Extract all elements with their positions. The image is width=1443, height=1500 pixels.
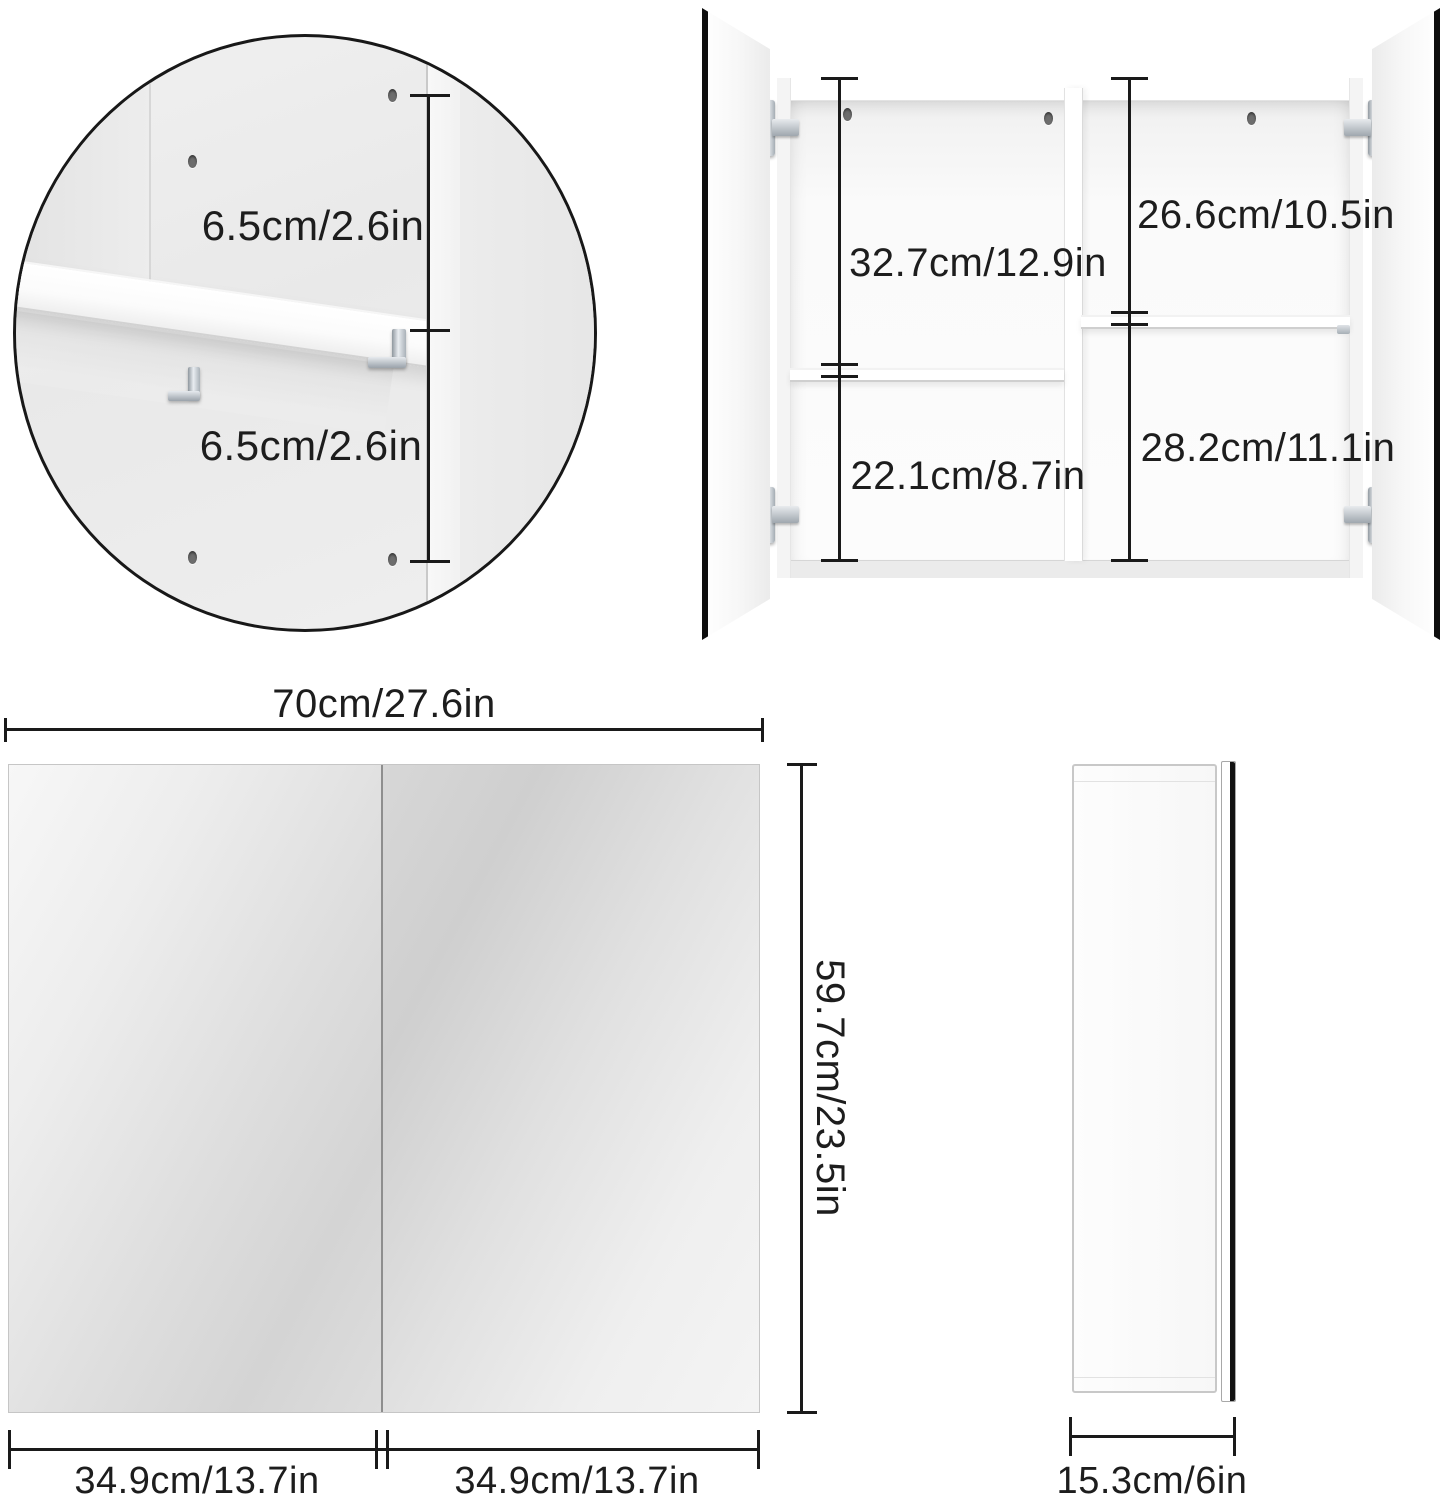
peg-hole (188, 551, 197, 564)
shelf-spacing-detail-circle: 6.5cm/2.6in 6.5cm/2.6in (13, 34, 597, 632)
tick (1111, 311, 1148, 314)
tick (1069, 1417, 1072, 1456)
tick (821, 375, 858, 378)
cabinet-side-wall (426, 37, 463, 629)
dim-label-left-bottom: 22.1cm/8.7in (850, 456, 1085, 496)
product-dimension-diagram: 6.5cm/2.6in 6.5cm/2.6in (0, 0, 1443, 1500)
dim-label-height: 59.7cm/23.5in (810, 959, 850, 1217)
peg-hole (188, 155, 197, 168)
dim-label-left-top: 32.7cm/12.9in (849, 243, 1107, 283)
tick (821, 559, 858, 562)
mirror-front (8, 764, 760, 1413)
tick (8, 1430, 11, 1469)
dim-label-upper-gap: 6.5cm/2.6in (202, 205, 425, 247)
cabinet-side-body (1072, 764, 1217, 1393)
mirror-door-right (383, 765, 759, 1412)
dimension-line-right-compartment (1128, 78, 1131, 561)
cabinet-door-left-open (702, 8, 770, 640)
tick (4, 718, 7, 742)
tick (410, 329, 450, 332)
dimension-line-left-compartment (838, 78, 841, 561)
cabinet-door-right-open (1372, 8, 1440, 640)
dim-label-right-door: 34.9cm/13.7in (454, 1462, 699, 1500)
top-rail-seam (1074, 781, 1215, 782)
tick (787, 763, 817, 766)
mirror-door-side (1221, 761, 1236, 1402)
dim-label-right-top: 26.6cm/10.5in (1137, 195, 1395, 235)
tick (1111, 77, 1148, 80)
tick (787, 1411, 817, 1414)
peg-hole (388, 553, 397, 566)
back-panel-shading (16, 37, 151, 297)
mirror-door-left (9, 765, 381, 1412)
peg-hole (1044, 112, 1053, 125)
dim-label-left-door: 34.9cm/13.7in (74, 1462, 319, 1500)
dim-label-width: 70cm/27.6in (272, 684, 495, 724)
dim-label-depth: 15.3cm/6in (1057, 1462, 1248, 1500)
tick (1111, 559, 1148, 562)
bottom-rail-seam (1074, 1377, 1215, 1378)
tick (757, 1430, 760, 1469)
door-edge-shading (460, 37, 597, 629)
tick (410, 94, 450, 97)
dim-label-right-bottom: 28.2cm/11.1in (1141, 428, 1396, 468)
tick (821, 77, 858, 80)
tick (386, 1430, 389, 1469)
peg-hole (1247, 112, 1256, 125)
dimension-line-door-widths (8, 1448, 760, 1451)
dimension-line-height (800, 764, 803, 1413)
mirror-edge (702, 8, 708, 640)
peg-hole (843, 108, 852, 121)
mirror-glass-edge (1230, 762, 1235, 1401)
right-compartment-shelf (1081, 315, 1350, 329)
dimension-line-depth (1069, 1435, 1236, 1438)
tick (821, 363, 858, 366)
dimension-line-width (4, 728, 764, 731)
shelf-bracket (1337, 325, 1350, 334)
tick (410, 560, 450, 563)
cabinet-bottom-board (777, 560, 1363, 578)
mirror-edge (1434, 8, 1440, 640)
tick (1233, 1417, 1236, 1456)
tick (375, 1430, 378, 1469)
dim-label-lower-gap: 6.5cm/2.6in (200, 425, 423, 467)
tick (761, 718, 764, 742)
interior-corner-line (149, 37, 151, 287)
peg-hole (388, 89, 397, 102)
tick (1111, 323, 1148, 326)
